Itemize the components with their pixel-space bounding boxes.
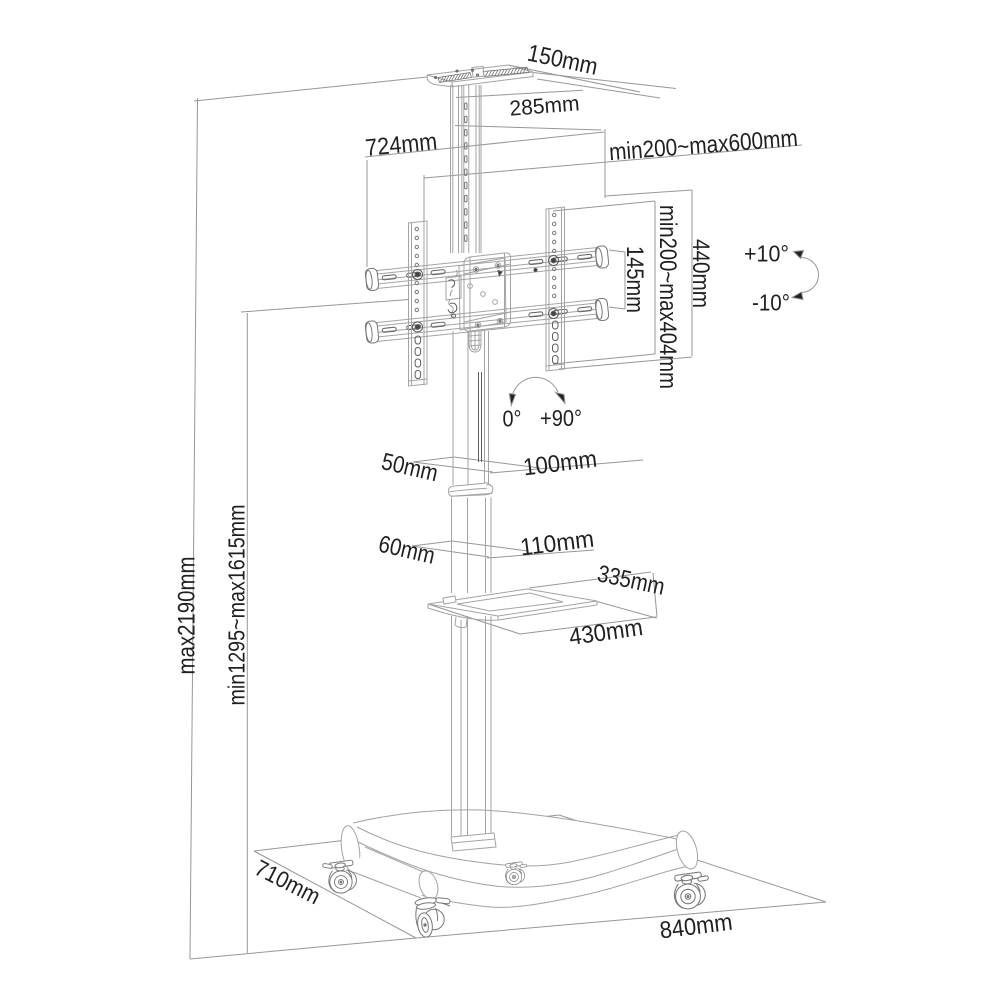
svg-text:+10°: +10° xyxy=(744,241,789,267)
svg-text:145mm: 145mm xyxy=(621,246,648,313)
svg-text:max2190mm: max2190mm xyxy=(174,557,201,675)
svg-text:0°: 0° xyxy=(503,406,522,432)
svg-text:-10°: -10° xyxy=(752,290,790,316)
svg-text:min200~max404mm: min200~max404mm xyxy=(654,205,681,389)
svg-text:440mm: 440mm xyxy=(687,239,714,308)
svg-text:min1295~max1615mm: min1295~max1615mm xyxy=(224,505,250,706)
svg-text:+90°: +90° xyxy=(540,405,582,431)
